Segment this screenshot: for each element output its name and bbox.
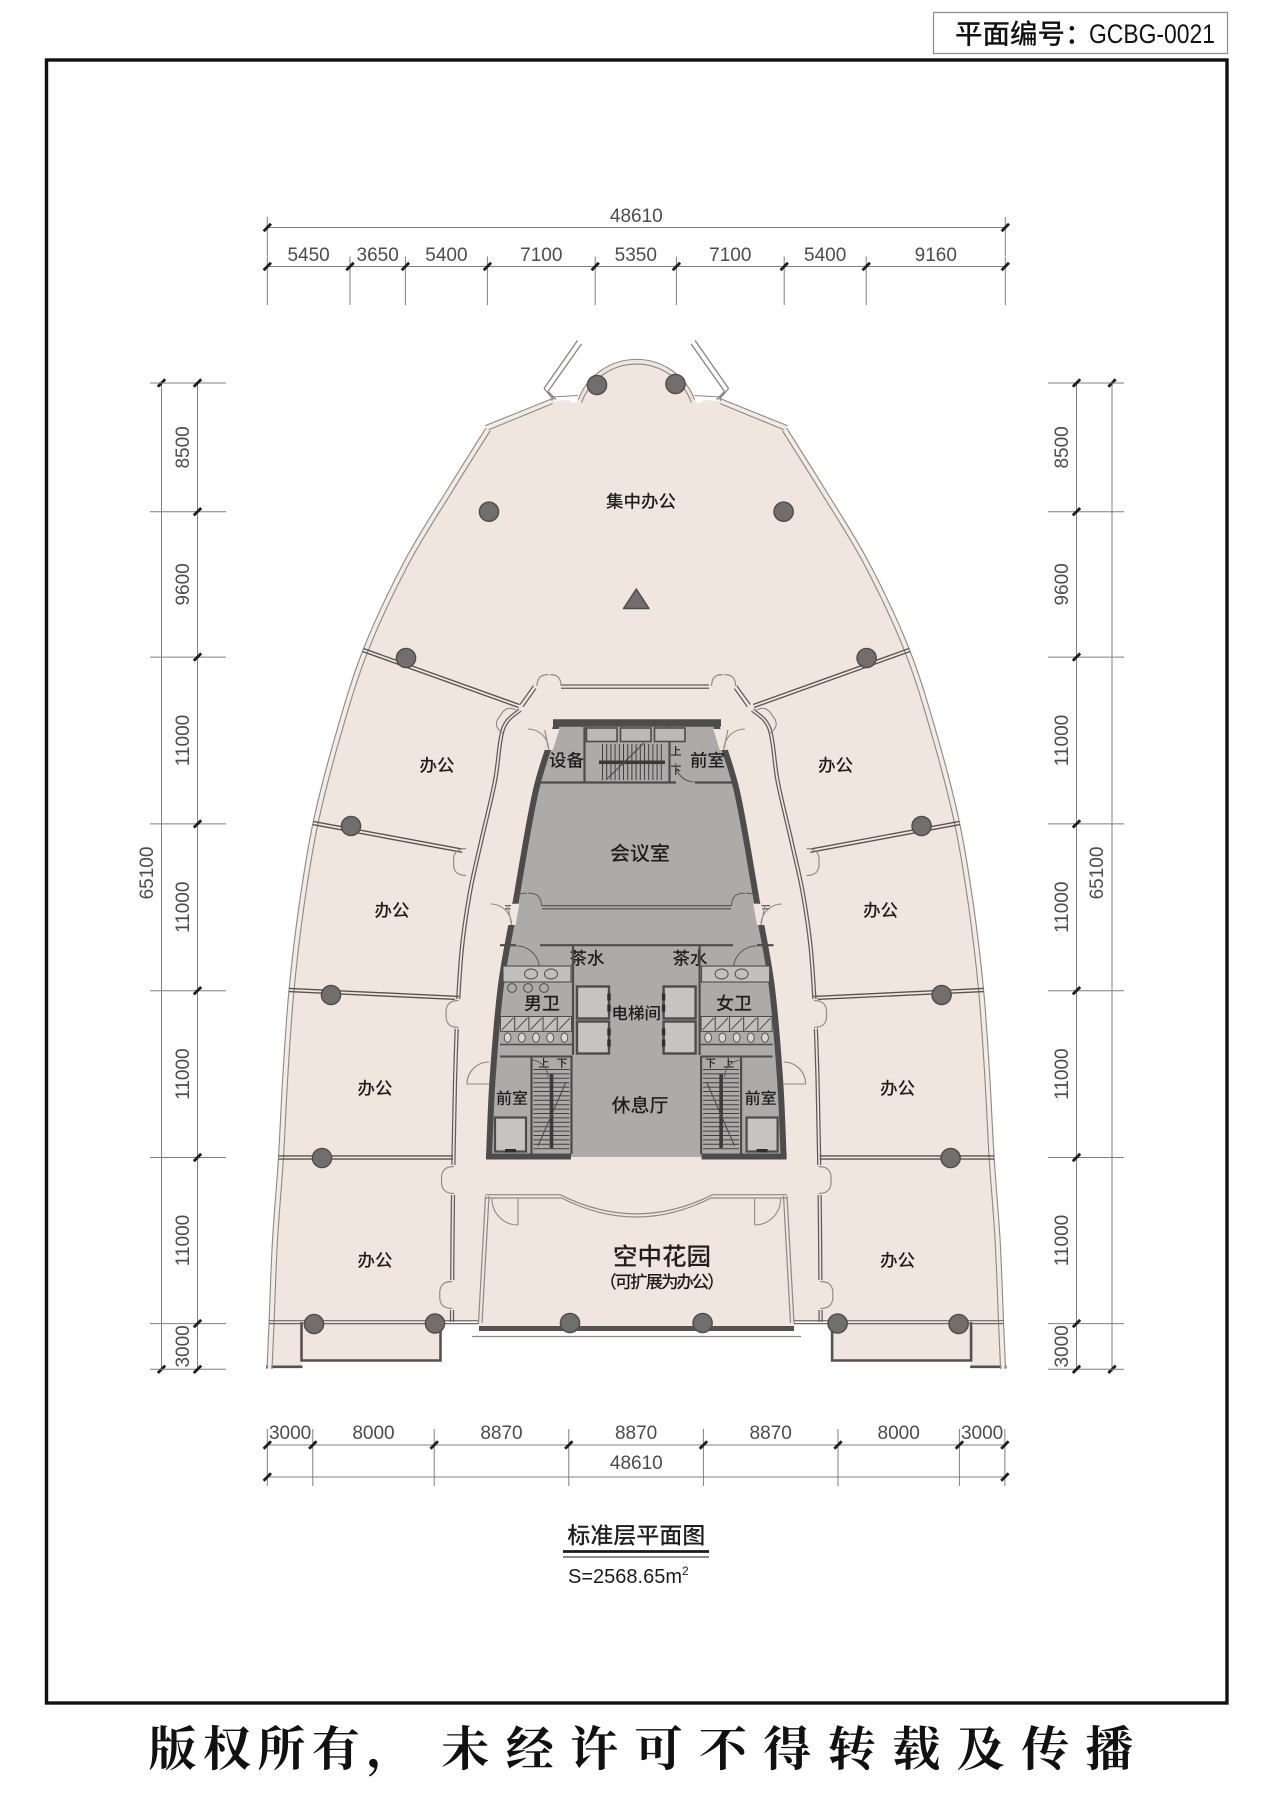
svg-text:11000: 11000 [173, 715, 194, 766]
svg-text:5350: 5350 [615, 245, 657, 266]
svg-text:S=2568.65m2: S=2568.65m2 [568, 1564, 689, 1588]
svg-text:5400: 5400 [425, 245, 467, 266]
svg-text:3000: 3000 [269, 1423, 311, 1444]
svg-text:11000: 11000 [173, 1215, 194, 1266]
svg-text:11000: 11000 [1052, 1048, 1073, 1099]
svg-text:3000: 3000 [1052, 1325, 1073, 1367]
svg-text:8870: 8870 [480, 1423, 522, 1444]
svg-text:11000: 11000 [1052, 882, 1073, 933]
svg-text:7100: 7100 [520, 245, 562, 266]
svg-text:5450: 5450 [287, 245, 329, 266]
svg-text:8870: 8870 [615, 1423, 657, 1444]
svg-text:65100: 65100 [137, 847, 158, 900]
svg-text:8000: 8000 [352, 1423, 394, 1444]
svg-text:9600: 9600 [1052, 563, 1073, 605]
svg-text:65100: 65100 [1087, 847, 1108, 900]
svg-text:48610: 48610 [610, 206, 663, 227]
svg-text:3000: 3000 [173, 1325, 194, 1367]
svg-text:48610: 48610 [610, 1453, 663, 1474]
svg-text:3650: 3650 [357, 245, 399, 266]
svg-text:9600: 9600 [173, 563, 194, 605]
svg-text:11000: 11000 [173, 882, 194, 933]
svg-text:7100: 7100 [709, 245, 751, 266]
svg-text:9160: 9160 [915, 245, 957, 266]
svg-text:11000: 11000 [1052, 1215, 1073, 1266]
svg-text:8870: 8870 [750, 1423, 792, 1444]
svg-text:8000: 8000 [878, 1423, 920, 1444]
svg-text:11000: 11000 [1052, 715, 1073, 766]
svg-text:8500: 8500 [1052, 426, 1073, 468]
svg-text:5400: 5400 [804, 245, 846, 266]
svg-text:3000: 3000 [961, 1423, 1003, 1444]
svg-text:8500: 8500 [173, 426, 194, 468]
svg-text:GCBG-0021: GCBG-0021 [1089, 19, 1215, 49]
svg-text:11000: 11000 [173, 1048, 194, 1099]
